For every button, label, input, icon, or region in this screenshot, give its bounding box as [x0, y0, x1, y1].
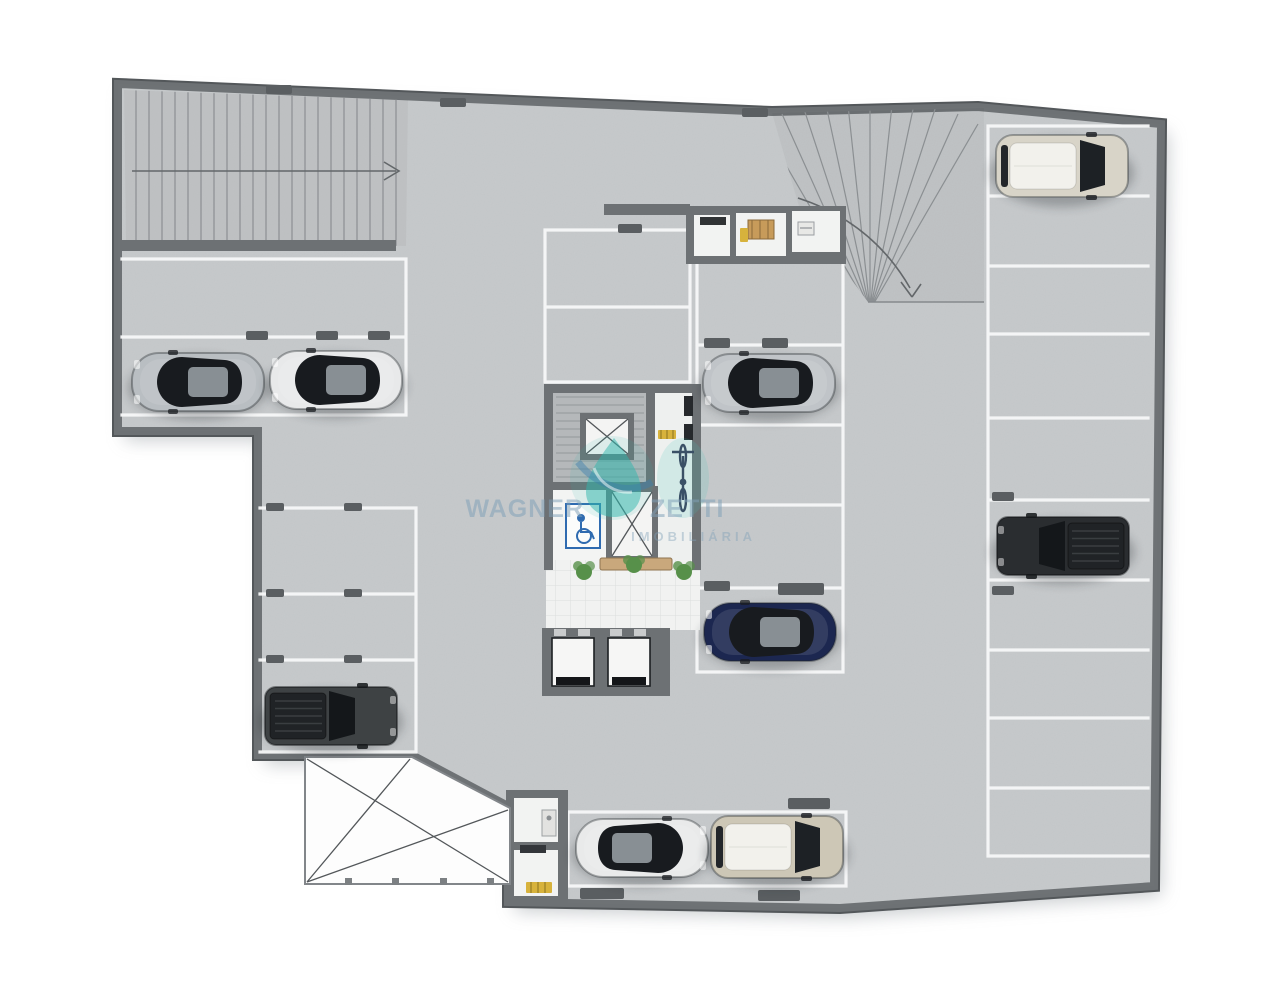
pickup-shape [997, 513, 1129, 579]
yellow-equipment [526, 882, 552, 893]
car-sedan-silver-center [699, 351, 839, 421]
floorplan-svg: WAGNER ZETTI IMOBILIÁRIA [0, 0, 1280, 1004]
car-suv-beige-bottom [705, 813, 849, 888]
sedan-shape [132, 350, 264, 414]
equipment-panel [700, 217, 726, 225]
suv-shape [711, 813, 843, 881]
electrical-panel-2 [684, 424, 693, 440]
floor-plan-render: WAGNER ZETTI IMOBILIÁRIA [0, 0, 1280, 1004]
sedan-shape [704, 600, 836, 664]
sedan-shape [270, 348, 402, 412]
car-sedan-white-left [266, 348, 406, 418]
sedan-shape [703, 351, 835, 415]
elevators [542, 628, 670, 696]
floor-mat [520, 845, 546, 853]
car-suv-white-top-right [990, 132, 1134, 207]
watermark-subtitle: IMOBILIÁRIA [631, 529, 756, 544]
suv-shape [996, 132, 1128, 200]
utility-rooms-bottom [506, 790, 568, 904]
watermark-name-right: ZETTI [650, 495, 724, 523]
bike-seat [680, 479, 687, 486]
ramp-left [120, 85, 415, 251]
pickup-shape [265, 683, 397, 749]
car-sedan-silver-left [128, 350, 268, 420]
car-pickup-gray-bottom-left [259, 683, 403, 754]
electrical-panel [684, 396, 693, 416]
ramp-left-bottom-wall [120, 240, 396, 251]
utility-yellow-item [740, 228, 748, 242]
car-sedan-navy-center [700, 600, 840, 670]
watermark-name-left: WAGNER [466, 495, 585, 523]
sedan-shape [576, 816, 708, 880]
car-pickup-black-right [991, 513, 1135, 584]
car-sedan-white-bottom [572, 816, 712, 886]
shower-fixture [542, 810, 556, 836]
